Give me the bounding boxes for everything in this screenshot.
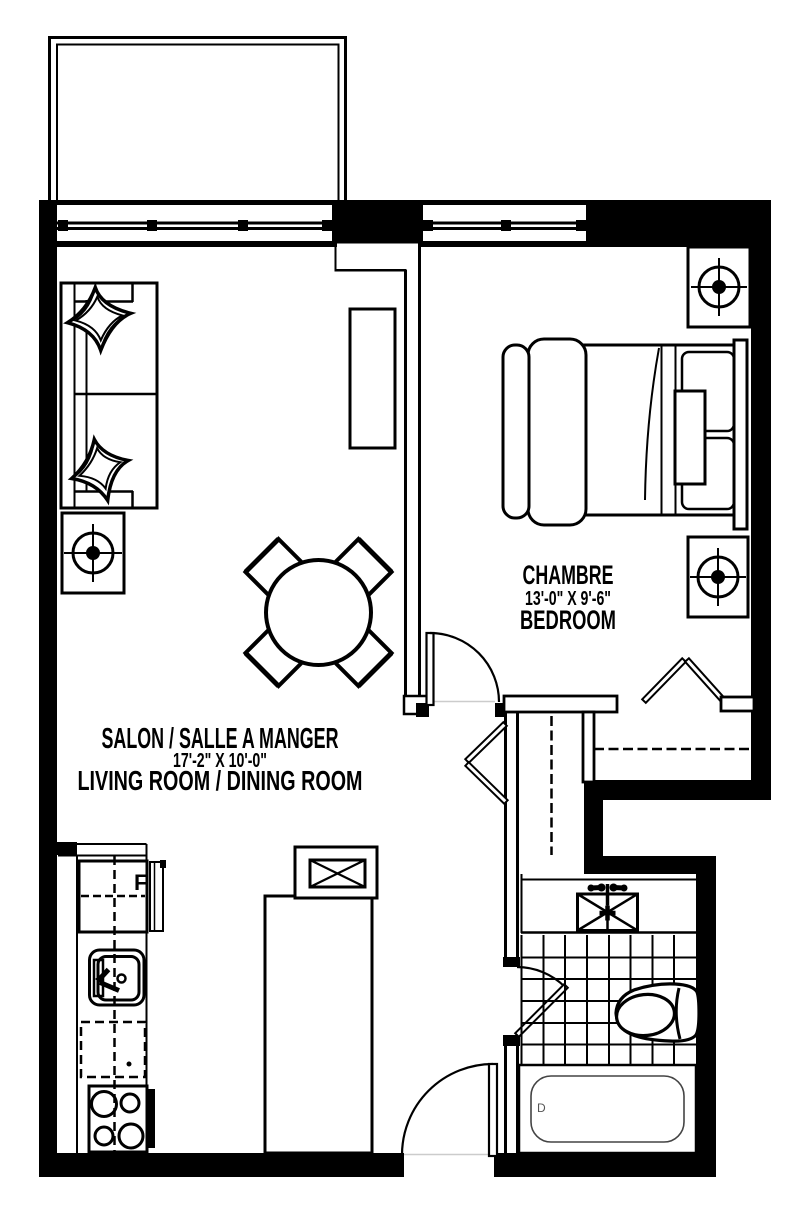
svg-text:BEDROOM: BEDROOM	[520, 605, 616, 635]
svg-text:CHAMBRE: CHAMBRE	[523, 560, 614, 590]
svg-text:LIVING ROOM / DINING ROOM: LIVING ROOM / DINING ROOM	[78, 765, 363, 796]
svg-text:F: F	[134, 870, 147, 895]
svg-text:D: D	[537, 1101, 546, 1115]
